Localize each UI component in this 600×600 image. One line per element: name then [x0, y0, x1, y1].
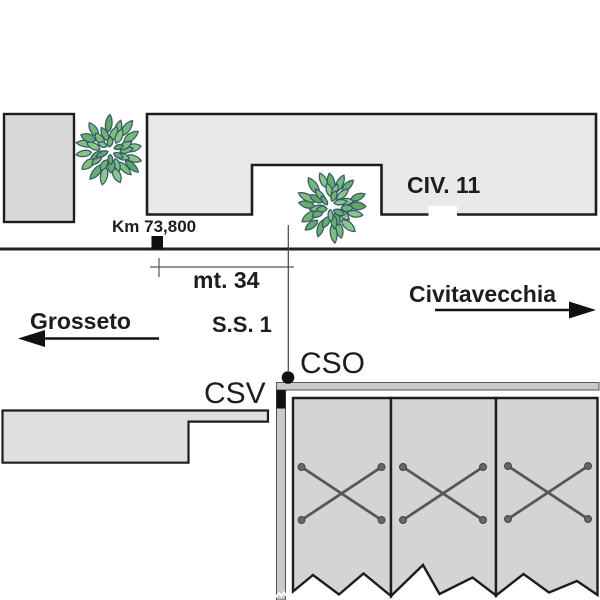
svg-text:CIV. 11: CIV. 11: [407, 172, 481, 198]
svg-text:mt. 34: mt. 34: [193, 267, 260, 293]
svg-text:Civitavecchia: Civitavecchia: [409, 281, 556, 307]
svg-text:S.S. 1: S.S. 1: [212, 312, 272, 337]
svg-text:CSV: CSV: [204, 377, 266, 410]
svg-text:Grosseto: Grosseto: [30, 308, 131, 334]
svg-text:CSO: CSO: [300, 347, 365, 380]
svg-text:Km 73,800: Km 73,800: [112, 217, 196, 236]
